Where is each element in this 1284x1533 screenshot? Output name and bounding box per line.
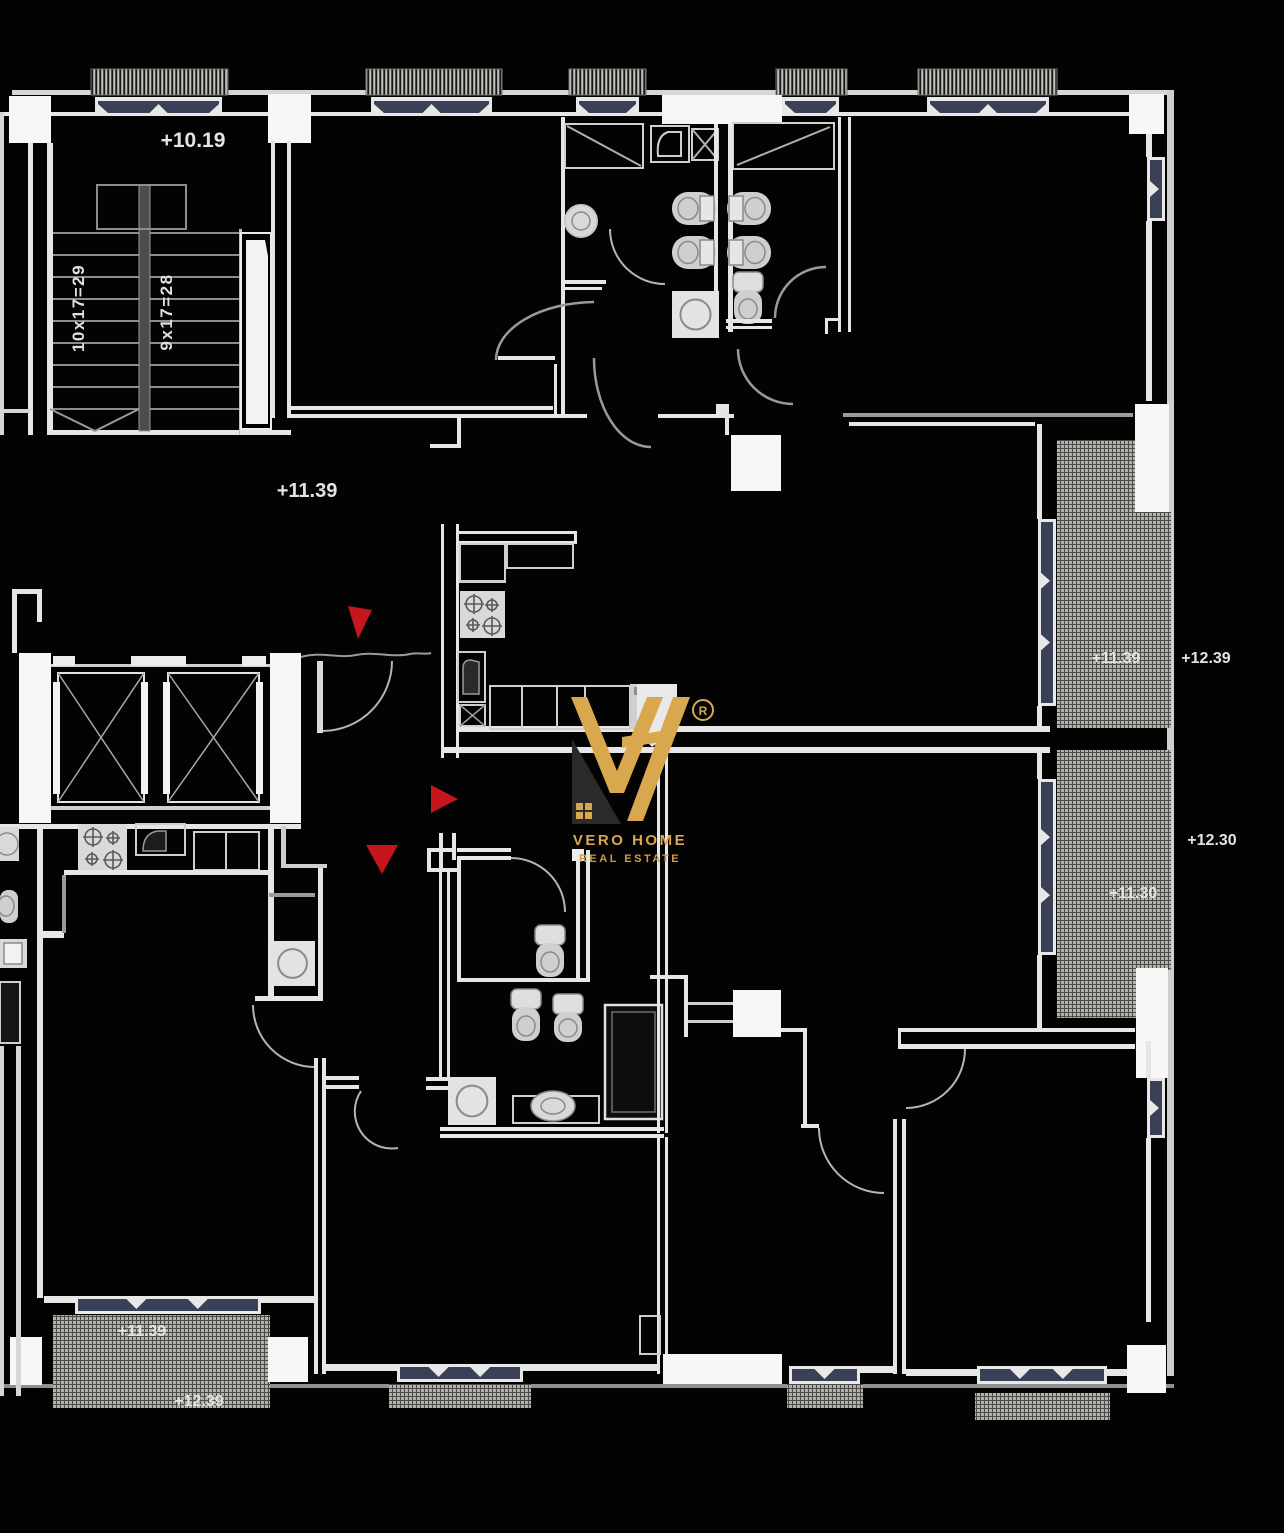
svg-text:+11.39: +11.39 — [118, 1323, 167, 1340]
svg-text:+11.30: +11.30 — [1109, 885, 1158, 902]
svg-text:+11.39: +11.39 — [1092, 650, 1141, 667]
svg-text:10x17=29: 10x17=29 — [69, 264, 88, 352]
svg-text:+11.39: +11.39 — [277, 480, 338, 502]
svg-text:REAL ESTATE: REAL ESTATE — [579, 853, 681, 865]
svg-text:9x17=28: 9x17=28 — [157, 273, 176, 350]
svg-text:R: R — [699, 704, 708, 718]
svg-text:+10.19: +10.19 — [161, 129, 226, 152]
svg-text:+12.39: +12.39 — [174, 1393, 223, 1410]
svg-text:VERO HOME: VERO HOME — [573, 832, 687, 849]
svg-text:+12.30: +12.30 — [1187, 832, 1236, 849]
svg-text:+12.39: +12.39 — [1181, 650, 1230, 667]
